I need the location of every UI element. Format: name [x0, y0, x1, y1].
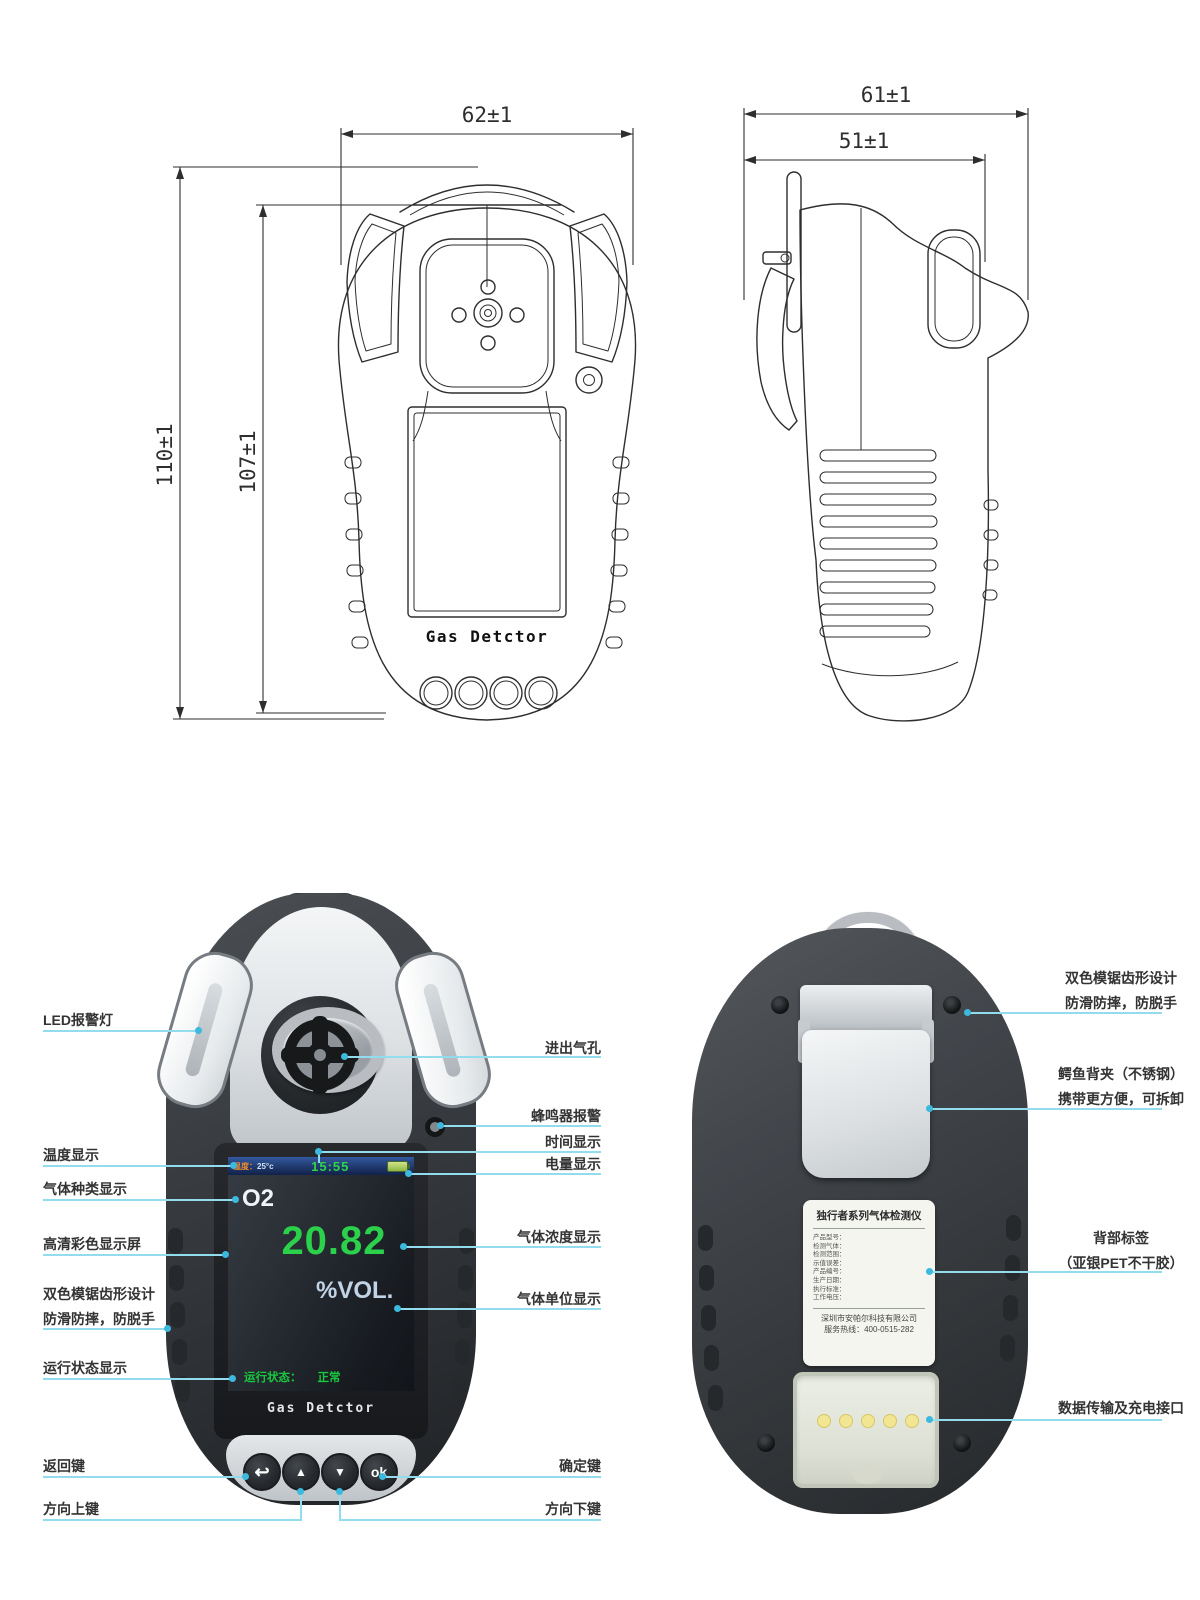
side-view-drawing: 61±1 51±1	[744, 83, 1028, 721]
back-key: ↩	[243, 1453, 281, 1491]
down-key: ▼	[321, 1453, 359, 1491]
grip-rib	[455, 1339, 470, 1365]
svg-text:62±1: 62±1	[462, 103, 513, 127]
brand-text: Gas Detctor	[228, 1401, 414, 1416]
grip-rib	[698, 1225, 713, 1251]
screw-hole	[943, 996, 961, 1014]
charge-pin	[861, 1414, 875, 1428]
drawing-ribs	[345, 457, 629, 648]
gas-inlet-sensor	[261, 996, 379, 1114]
time-display: 15:55	[274, 1159, 387, 1174]
up-key: ▲	[282, 1453, 320, 1491]
grip-rib	[1000, 1335, 1015, 1361]
screw-hole	[953, 1434, 971, 1452]
screw-hole	[757, 1434, 775, 1452]
grip-rib	[170, 1302, 185, 1328]
drawing-vents	[820, 450, 937, 637]
charging-dock	[793, 1372, 939, 1488]
dim-front-height-inner: 107±1	[236, 205, 411, 713]
grip-rib	[168, 1228, 183, 1254]
up-triangle-icon: ▲	[295, 1465, 307, 1479]
grip-rib	[1005, 1255, 1020, 1281]
callout-clip: 鳄鱼背夹（不锈钢） 携带更方便，可拆卸	[1036, 1062, 1200, 1112]
back-label-sticker: 独行者系列气体检测仪 产品型号： 检测气体： 检测范围： 示值误差： 产品编号：…	[803, 1200, 935, 1366]
grip-rib	[457, 1302, 472, 1328]
company-name: 深圳市安帕尔科技有限公司	[813, 1313, 925, 1324]
lcd-screen: 温度： 25°c 15:55 O2 20.82 %VOL. 运行状态：正常	[228, 1157, 414, 1391]
grip-rib	[704, 1345, 719, 1371]
callout-sawtooth-back: 双色模锯齿形设计 防滑防摔，防脱手	[1036, 966, 1200, 1016]
callout-sawtooth-front: 双色模锯齿形设计 防滑防摔，防脱手	[43, 1282, 155, 1332]
return-arrow-icon: ↩	[254, 1462, 269, 1483]
svg-text:51±1: 51±1	[839, 129, 890, 153]
drawing-brand-text: Gas Detctor	[426, 627, 548, 646]
grip-rib	[699, 1265, 714, 1291]
gas-unit-display: %VOL.	[316, 1277, 393, 1305]
dim-side-inner: 51±1	[744, 129, 985, 262]
drawing-buttons	[420, 677, 557, 709]
screen-status-bar: 温度： 25°c 15:55	[228, 1157, 414, 1175]
grip-rib	[458, 1265, 473, 1291]
charge-pin	[883, 1414, 897, 1428]
battery-icon	[387, 1161, 408, 1172]
alligator-clip-plate	[802, 1030, 930, 1178]
front-view-drawing: Gas Detctor	[153, 103, 636, 720]
callout-charge-port: 数据传输及充电接口	[1036, 1396, 1200, 1421]
charge-pin	[817, 1414, 831, 1428]
grip-rib	[169, 1265, 184, 1291]
callout-back-label: 背部标签 （亚银PET不干胶）	[1036, 1226, 1200, 1276]
screw-hole	[771, 996, 789, 1014]
ok-key: ok	[360, 1453, 398, 1491]
charge-pin	[905, 1414, 919, 1428]
grip-rib	[708, 1385, 723, 1411]
gas-concentration-display: 20.82	[228, 1219, 414, 1264]
dock-dent	[852, 1464, 882, 1484]
sticker-title: 独行者系列气体检测仪	[813, 1208, 925, 1229]
gas-type-display: O2	[242, 1185, 274, 1213]
grip-rib	[172, 1339, 187, 1365]
charge-pin	[839, 1414, 853, 1428]
grip-rib	[459, 1228, 474, 1254]
sticker-footer: 深圳市安帕尔科技有限公司 服务热线：400-0515-282	[813, 1308, 925, 1335]
grip-rib	[452, 1376, 467, 1402]
service-hotline: 服务热线：400-0515-282	[813, 1324, 925, 1335]
svg-text:61±1: 61±1	[861, 83, 912, 107]
temperature-value: 25°c	[257, 1162, 274, 1171]
svg-text:107±1: 107±1	[236, 430, 260, 493]
technical-drawings: Gas Detctor	[0, 0, 1200, 800]
run-status-display: 运行状态：正常	[244, 1369, 341, 1385]
down-triangle-icon: ▼	[334, 1465, 346, 1479]
product-sheet: Gas Detctor	[0, 0, 1200, 1600]
svg-text:110±1: 110±1	[153, 423, 177, 486]
back-render: 独行者系列气体检测仪 产品型号： 检测气体： 检测范围： 示值误差： 产品编号：…	[692, 928, 1028, 1514]
grip-rib	[1006, 1215, 1021, 1241]
grip-rib	[1003, 1295, 1018, 1321]
grip-rib	[701, 1305, 716, 1331]
